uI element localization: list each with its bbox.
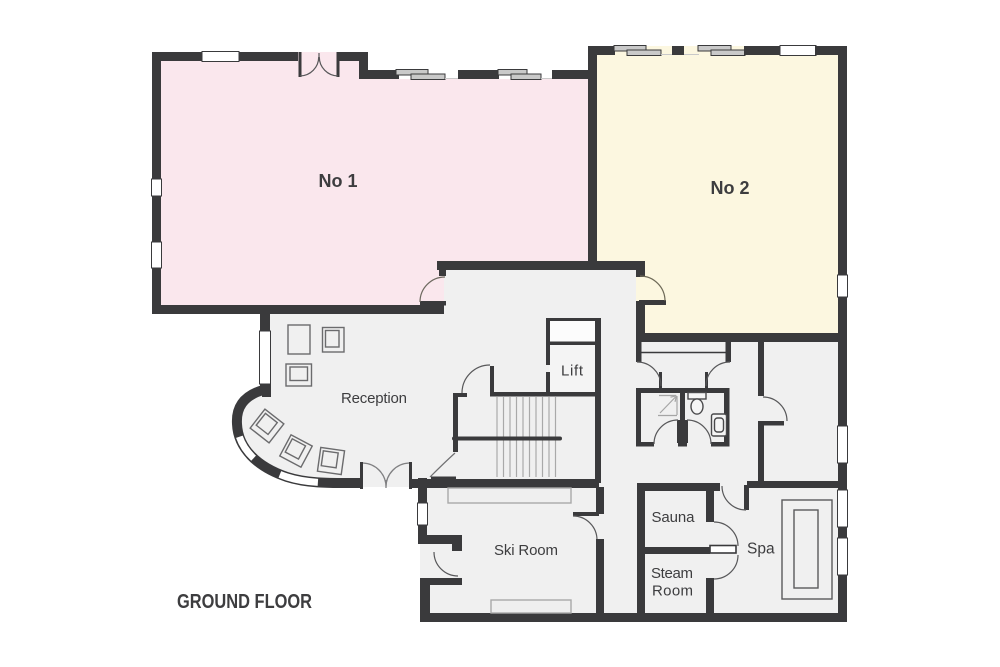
svg-text:Ski Room: Ski Room [494, 542, 558, 559]
svg-text:Room: Room [652, 583, 693, 600]
svg-text:Lift: Lift [561, 363, 584, 380]
svg-text:No 1: No 1 [318, 171, 357, 191]
svg-text:Steam: Steam [651, 565, 693, 582]
svg-text:Reception: Reception [341, 390, 407, 407]
svg-text:No 2: No 2 [710, 178, 749, 198]
svg-text:GROUND FLOOR: GROUND FLOOR [177, 590, 312, 613]
svg-text:Spa: Spa [747, 541, 775, 558]
svg-text:Sauna: Sauna [652, 509, 696, 526]
